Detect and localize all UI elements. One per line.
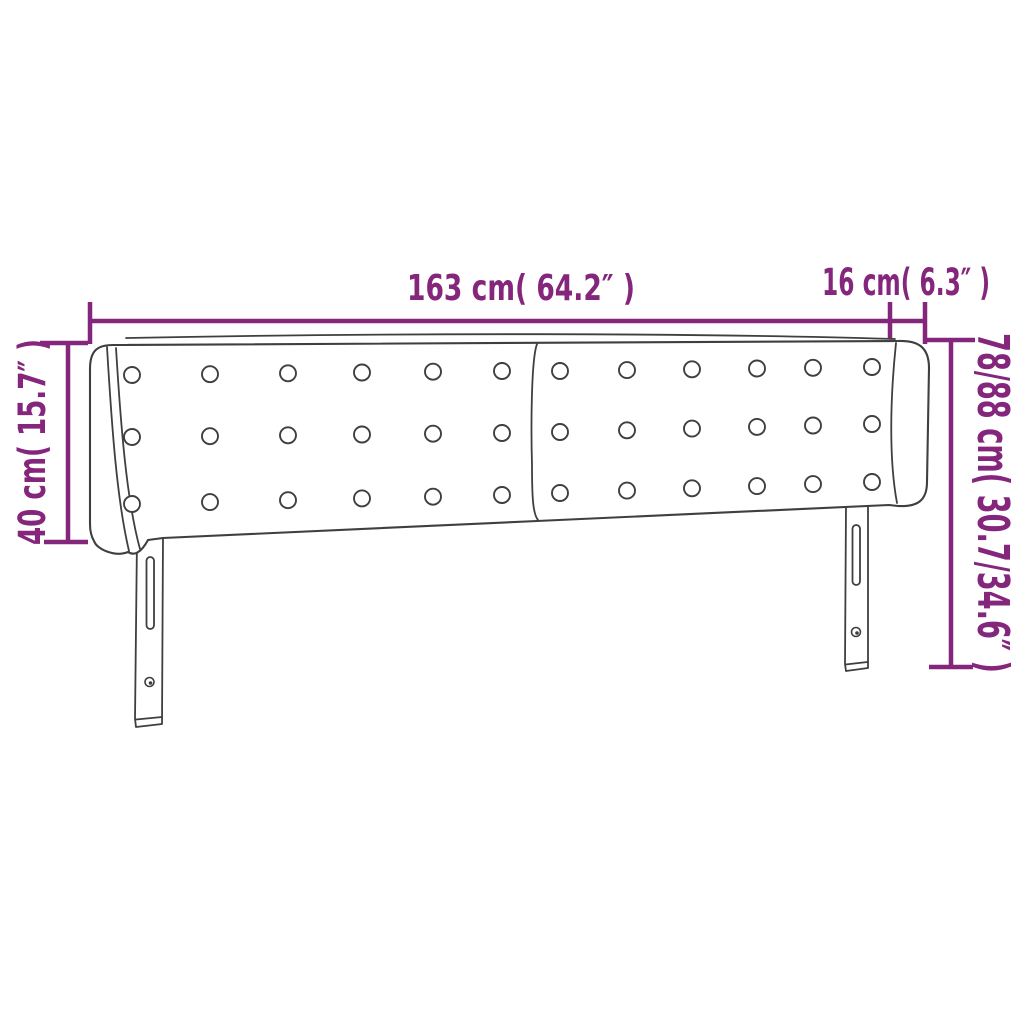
tufting-button — [684, 480, 700, 496]
tufting-button — [805, 476, 821, 492]
tufting-button — [552, 363, 568, 379]
leg-slot-left — [147, 557, 155, 629]
product-dimension-diagram: 163 cm( 64.2″ ) 16 cm( 6.3″ ) 40 cm( 15.… — [0, 0, 1024, 1024]
tufting-button — [619, 362, 635, 378]
panel-top-edge-line — [126, 334, 895, 339]
tufting-button — [202, 428, 218, 444]
tufting-button — [202, 366, 218, 382]
tufting-button — [749, 478, 765, 494]
total-width-label: 163 cm( 64.2″ ) — [407, 268, 635, 309]
tufting-button — [552, 485, 568, 501]
tufting-button — [354, 490, 370, 506]
mounting-leg-left — [135, 537, 163, 727]
wing-height-label: 40 cm( 15.7″ ) — [11, 339, 54, 545]
tufting-button — [354, 365, 370, 381]
tufting-button — [619, 483, 635, 499]
leg-slot-right — [853, 525, 861, 585]
tufting-button — [684, 361, 700, 377]
headboard-diagram-canvas: 163 cm( 64.2″ ) 16 cm( 6.3″ ) 40 cm( 15.… — [0, 0, 1024, 1024]
tufting-button — [494, 425, 510, 441]
tufting-button — [354, 427, 370, 443]
tufting-button — [619, 422, 635, 438]
tufting-button — [684, 421, 700, 437]
headboard-drawing — [90, 334, 929, 727]
tufting-button — [280, 492, 296, 508]
tufting-button — [124, 367, 140, 383]
tufting-button — [425, 489, 441, 505]
wing-depth-label: 16 cm( 6.3″ ) — [822, 261, 990, 304]
tufting-button — [864, 359, 880, 375]
tufting-button — [280, 365, 296, 381]
tufting-button — [202, 494, 218, 510]
tufting-button — [425, 364, 441, 380]
tufting-button — [124, 496, 140, 512]
tufting-button — [864, 416, 880, 432]
tufting-button — [494, 363, 510, 379]
total-height-label: 78/88 cm( 30.7/34.6″ ) — [967, 333, 1018, 673]
tufting-button — [749, 419, 765, 435]
tufting-button — [425, 426, 441, 442]
tufting-button — [494, 487, 510, 503]
tufting-button — [864, 474, 880, 490]
tufting-button — [280, 427, 296, 443]
tufting-button — [124, 429, 140, 445]
tufting-button — [749, 361, 765, 377]
tufting-button — [805, 418, 821, 434]
mounting-leg-right — [845, 505, 868, 671]
tufting-button — [805, 360, 821, 376]
tufting-button — [552, 424, 568, 440]
